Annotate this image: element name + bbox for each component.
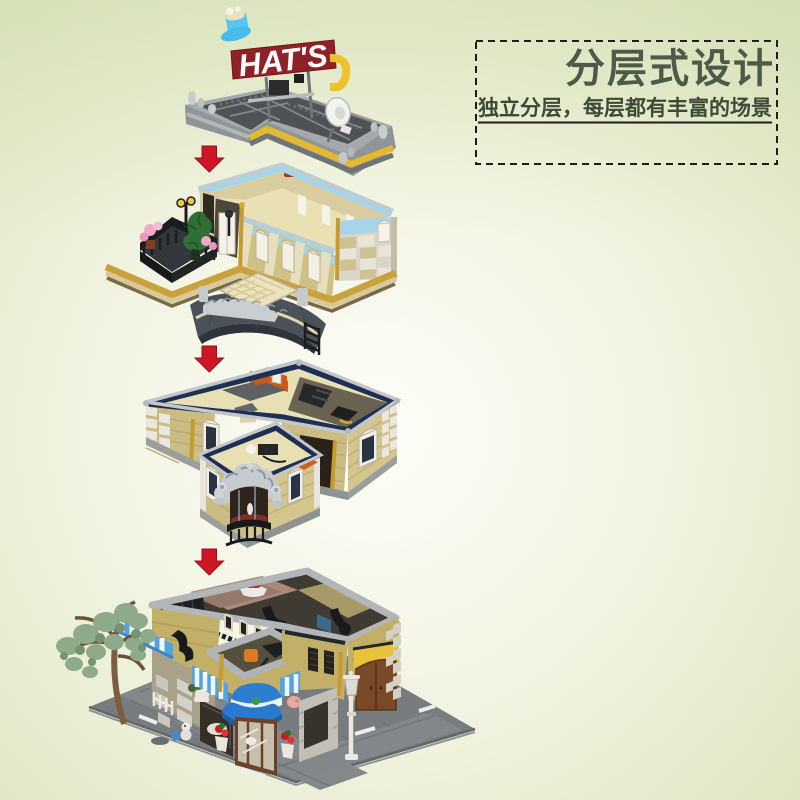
svg-text:分层式设计: 分层式设计: [565, 47, 775, 91]
svg-text:独立分层，每层都有丰富的场景: 独立分层，每层都有丰富的场景: [478, 96, 772, 120]
